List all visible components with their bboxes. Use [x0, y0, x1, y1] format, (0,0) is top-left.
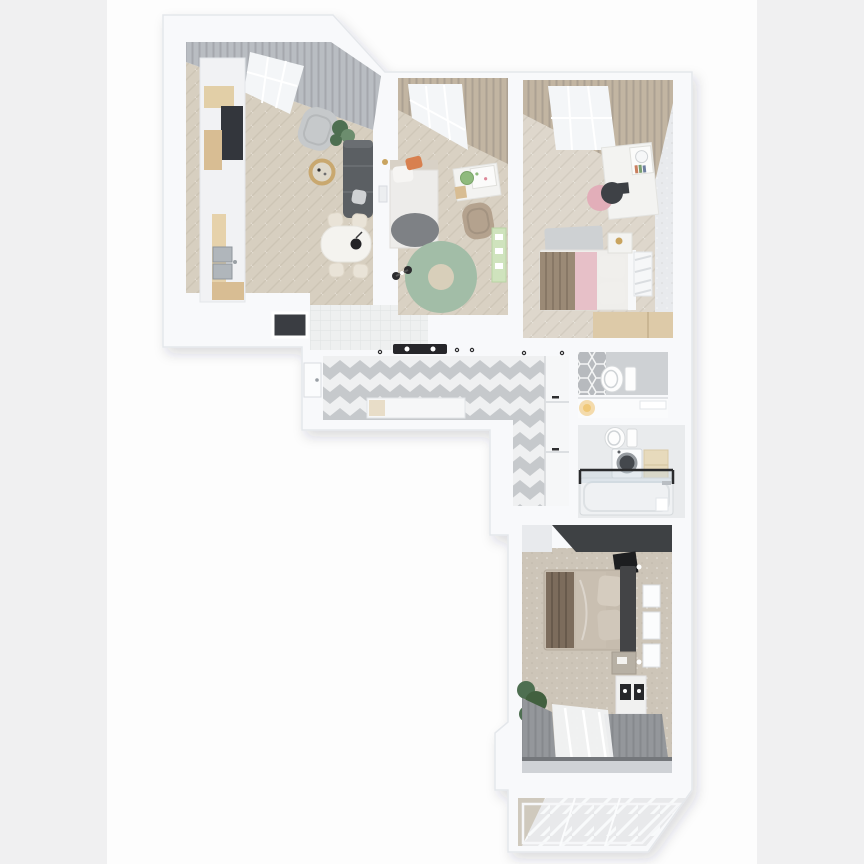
- bed-single: [390, 155, 439, 248]
- nightstand-dark: [612, 652, 636, 674]
- wood-builtin-block: [593, 312, 673, 338]
- sconce: [637, 565, 642, 570]
- kitchen-run: [200, 58, 245, 302]
- wall-niche: [273, 313, 307, 337]
- bathtub-with-glass: [580, 470, 673, 515]
- warm-lamp: [583, 404, 591, 412]
- room-bathroom: [578, 425, 685, 518]
- wood-cabinet: [204, 130, 222, 170]
- pink-blanket: [575, 252, 597, 310]
- dining-chair: [328, 262, 344, 277]
- closet-handle: [552, 448, 559, 451]
- nightstand: [608, 233, 632, 253]
- rug-round-green: [405, 241, 477, 313]
- bed-master: [544, 566, 636, 654]
- pillow: [598, 281, 625, 305]
- wall-moldings: [643, 585, 660, 667]
- gold-lamp: [616, 238, 623, 245]
- coffee-table: [309, 159, 336, 186]
- left-margin-bar: [0, 0, 107, 864]
- wood-base-cabinet: [212, 282, 244, 300]
- room-bedroom-3: [517, 525, 672, 773]
- pillow: [597, 609, 623, 641]
- sink-basin: [213, 264, 232, 279]
- desk-kids: [452, 163, 501, 201]
- wall-frame: [379, 186, 387, 202]
- sconce: [637, 660, 642, 665]
- towel: [656, 498, 668, 511]
- tray: [369, 400, 385, 416]
- faucet: [662, 481, 671, 485]
- bedroom3-wall-face: [522, 525, 552, 552]
- wardrobe-louvered: [634, 252, 652, 296]
- faucet: [233, 260, 237, 264]
- closet-handle: [552, 396, 559, 399]
- hall-console: [367, 398, 465, 418]
- sink-basin: [213, 247, 232, 262]
- appliance-column: [221, 106, 243, 160]
- glass-screen: [580, 470, 673, 483]
- dresser: [616, 676, 646, 714]
- sofa: [343, 140, 373, 218]
- pillow: [597, 575, 624, 607]
- pendant-lamp: [351, 239, 362, 250]
- headboard: [620, 566, 636, 654]
- floor-plan-3d-render: [0, 0, 864, 864]
- toilet: [605, 428, 637, 449]
- niche-box: [640, 401, 666, 409]
- gray-throw: [391, 213, 439, 247]
- jacket-on-chair: [601, 182, 623, 204]
- door-handle: [315, 378, 319, 382]
- sofa-pillow: [351, 189, 367, 205]
- pleated-throw: [546, 572, 574, 648]
- room-bedroom-2: [523, 80, 673, 338]
- wood-shelf: [204, 86, 234, 108]
- room-wc: [578, 352, 668, 395]
- pinboard: [470, 165, 497, 188]
- dining-table: [321, 226, 371, 262]
- pillow: [598, 255, 625, 279]
- screenshot-canvas: [0, 0, 864, 864]
- dining-chair: [353, 264, 369, 279]
- chair-green: [461, 172, 474, 185]
- desk-vanity: [601, 143, 658, 220]
- track-light: [393, 344, 447, 354]
- sconce-gold: [382, 159, 388, 165]
- hall-closets: [545, 356, 569, 506]
- room-bedroom-1: [379, 78, 508, 315]
- entry-door: [304, 363, 321, 397]
- stool: [455, 186, 468, 199]
- curtain-rod: [522, 757, 672, 761]
- toilet: [601, 366, 636, 392]
- bed-double: [540, 250, 636, 310]
- right-margin-bar: [757, 0, 864, 864]
- hall-niche: [578, 398, 668, 418]
- play-shelf-green: [492, 228, 506, 282]
- window-sill-band: [522, 761, 672, 773]
